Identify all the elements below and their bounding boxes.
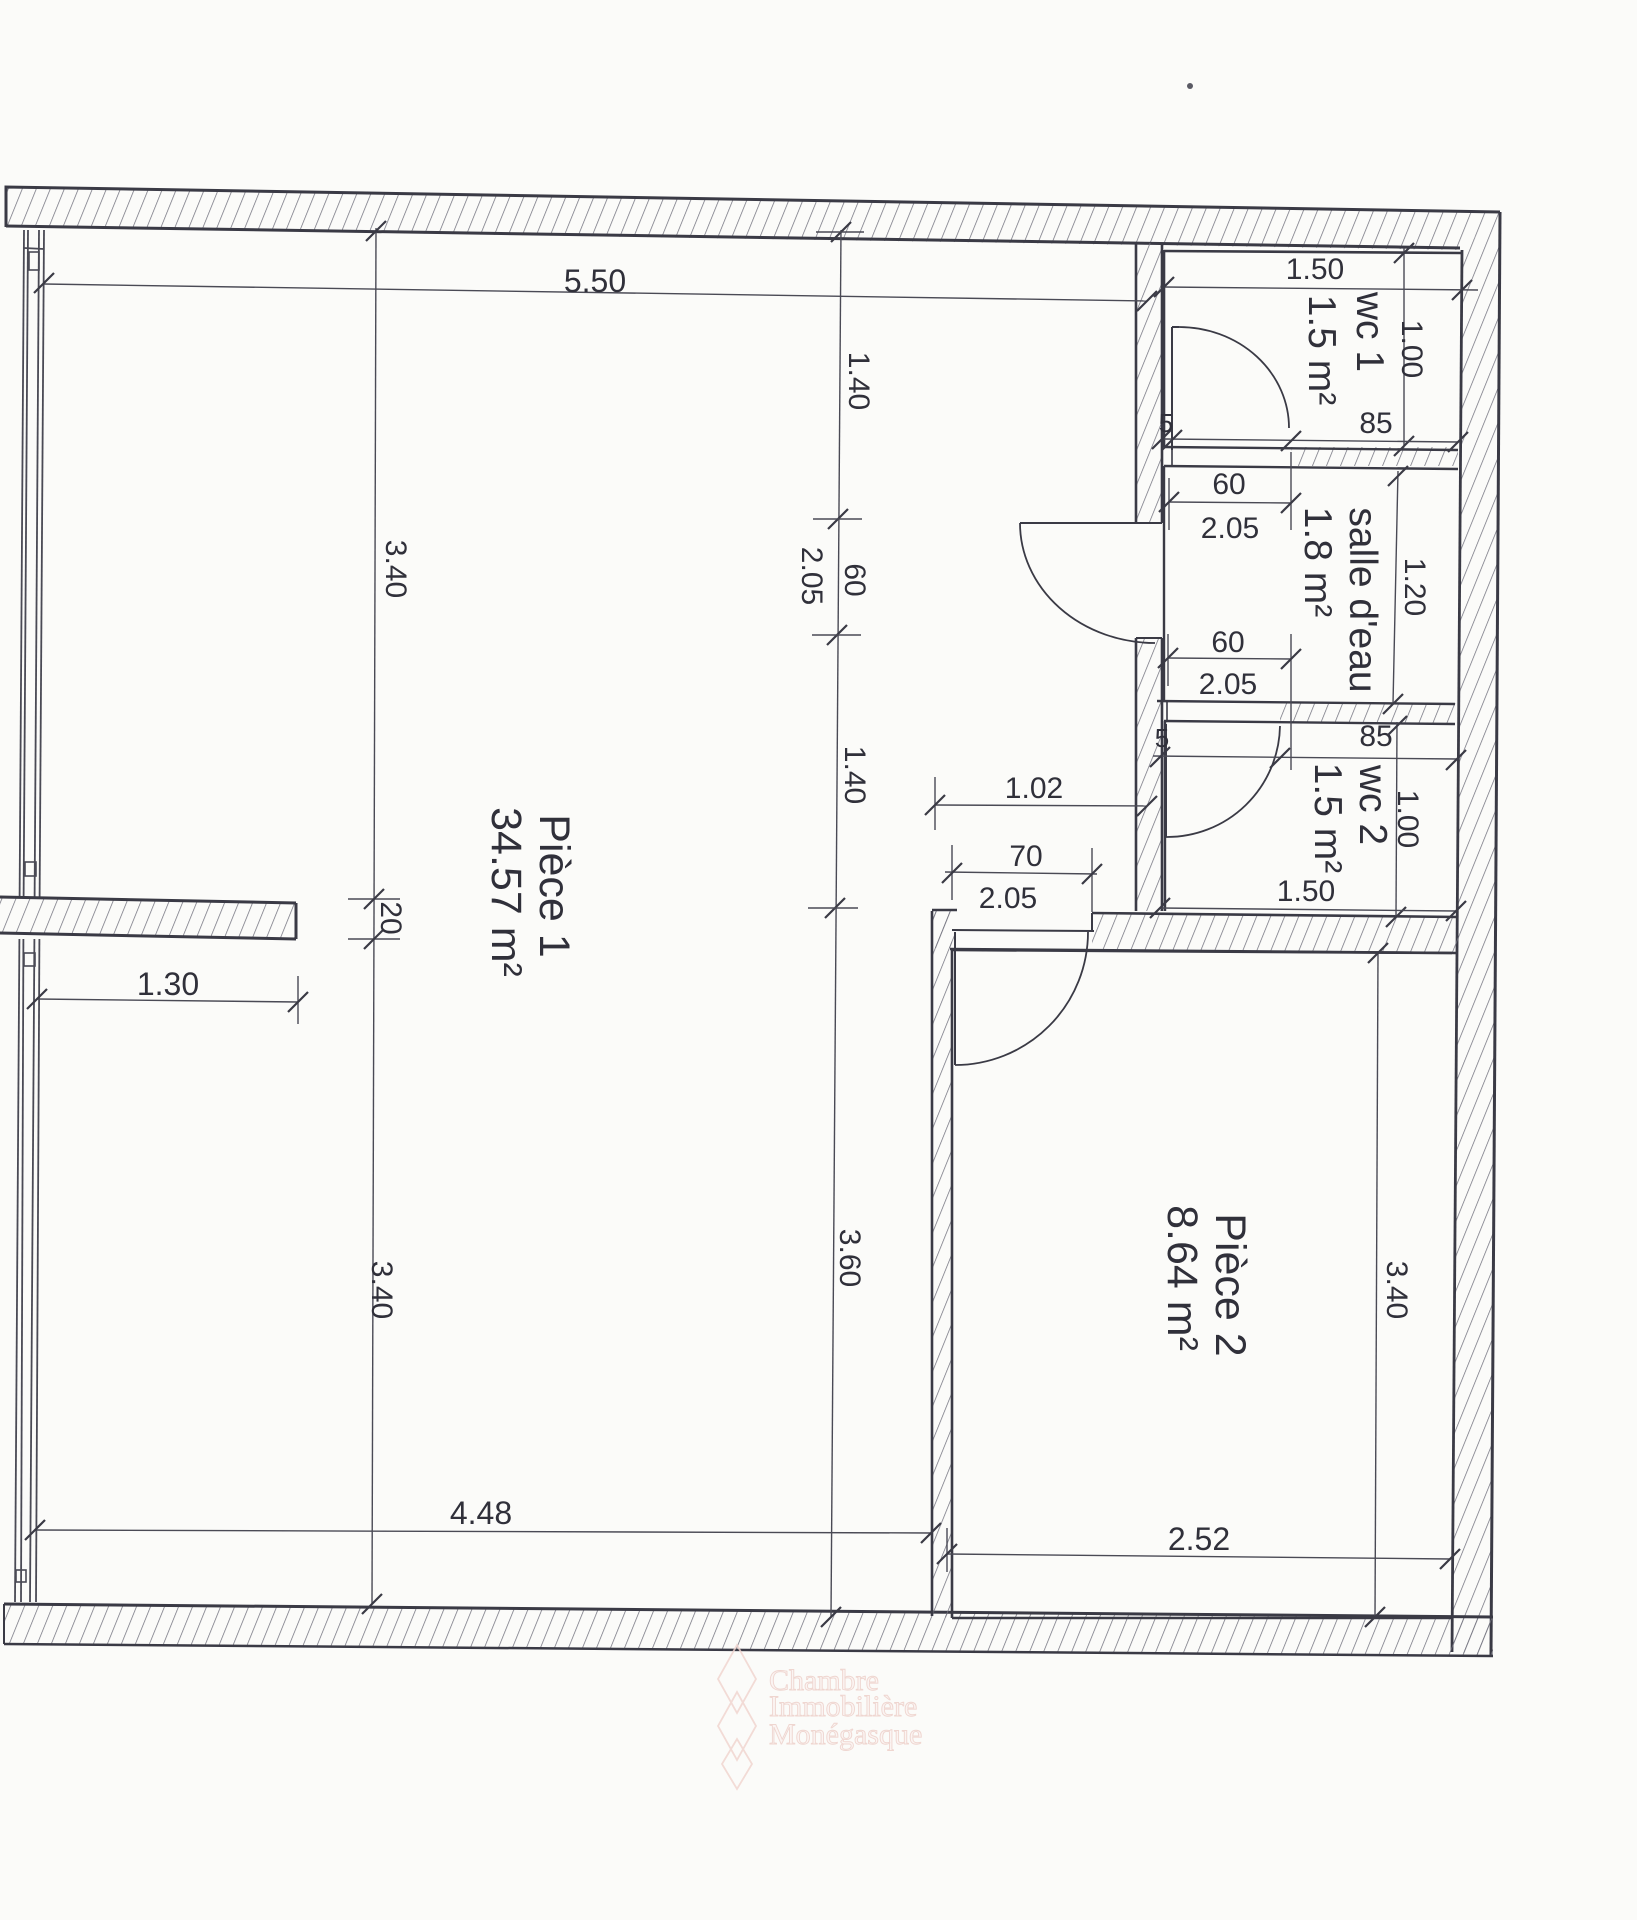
svg-text:1.00: 1.00 xyxy=(1391,790,1424,848)
svg-text:1.20: 1.20 xyxy=(1398,558,1431,616)
svg-text:60: 60 xyxy=(1212,468,1245,501)
svg-text:salle d'eau: salle d'eau xyxy=(1341,507,1384,692)
svg-text:3.40: 3.40 xyxy=(1380,1261,1413,1319)
svg-text:8.64 m²: 8.64 m² xyxy=(1158,1205,1206,1351)
svg-text:1.00: 1.00 xyxy=(1395,320,1428,378)
svg-text:1.40: 1.40 xyxy=(838,746,871,804)
svg-text:Pièce 1: Pièce 1 xyxy=(530,814,578,957)
svg-text:60: 60 xyxy=(1211,626,1244,659)
svg-text:5: 5 xyxy=(1159,408,1173,438)
svg-text:60: 60 xyxy=(838,563,871,596)
svg-text:20: 20 xyxy=(374,901,407,934)
svg-text:1.5 m²: 1.5 m² xyxy=(1306,763,1349,874)
svg-text:2.05: 2.05 xyxy=(979,882,1037,915)
svg-text:70: 70 xyxy=(1009,840,1042,873)
svg-text:1.30: 1.30 xyxy=(137,966,199,1002)
svg-text:85: 85 xyxy=(1359,407,1392,440)
svg-text:1.02: 1.02 xyxy=(1005,772,1063,805)
svg-text:4.48: 4.48 xyxy=(450,1495,512,1531)
svg-text:wc 1: wc 1 xyxy=(1348,291,1391,372)
svg-text:1.5 m²: 1.5 m² xyxy=(1300,295,1343,406)
svg-text:2.52: 2.52 xyxy=(1168,1521,1230,1557)
svg-text:wc 2: wc 2 xyxy=(1351,764,1394,845)
svg-text:3.60: 3.60 xyxy=(833,1229,866,1287)
svg-text:1.50: 1.50 xyxy=(1286,253,1344,286)
svg-text:1.50: 1.50 xyxy=(1277,875,1335,908)
svg-text:2.05: 2.05 xyxy=(795,547,828,605)
svg-text:3.40: 3.40 xyxy=(379,540,412,598)
svg-text:1.8 m²: 1.8 m² xyxy=(1296,507,1339,618)
svg-text:3.40: 3.40 xyxy=(365,1261,398,1319)
svg-text:34.57 m²: 34.57 m² xyxy=(482,807,530,977)
svg-text:2.05: 2.05 xyxy=(1199,668,1257,701)
svg-text:Pièce 2: Pièce 2 xyxy=(1206,1213,1254,1356)
svg-text:Monégasque: Monégasque xyxy=(769,1718,922,1751)
svg-text:1.40: 1.40 xyxy=(842,352,875,410)
svg-text:5: 5 xyxy=(1155,723,1169,753)
svg-text:2.05: 2.05 xyxy=(1201,512,1259,545)
svg-text:5.50: 5.50 xyxy=(564,263,626,299)
